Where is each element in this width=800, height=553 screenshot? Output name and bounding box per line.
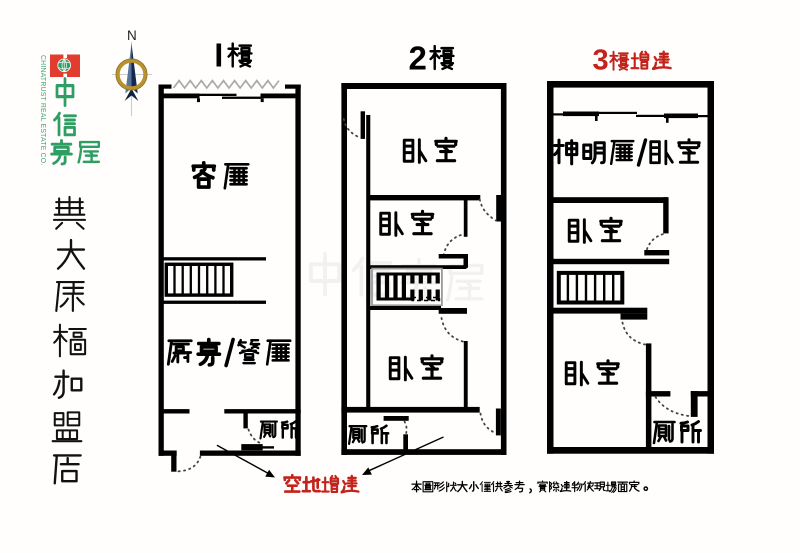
svg-text:3: 3 [593, 45, 609, 77]
svg-text:2: 2 [409, 40, 427, 77]
svg-text:N: N [127, 28, 137, 43]
svg-text:CHINATRUST REAL ESTATE CO.: CHINATRUST REAL ESTATE CO. [39, 55, 46, 166]
